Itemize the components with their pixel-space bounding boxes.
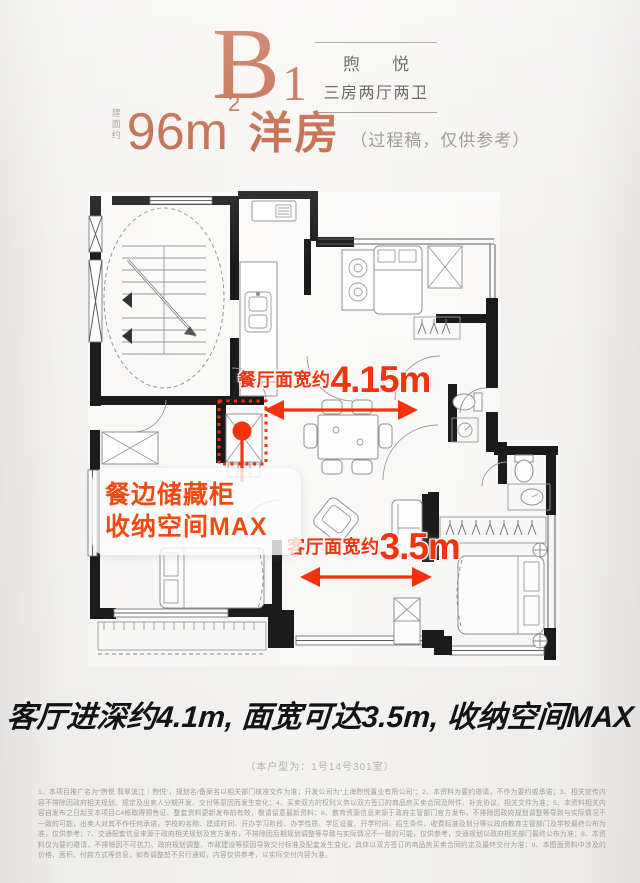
storage-callout-line1: 餐边储藏柜 <box>105 479 291 511</box>
headline: 客厅进深约4.1m, 面宽可达3.5m, 收纳空间MAX <box>0 692 640 736</box>
vent-hood-icon <box>252 201 296 221</box>
dining-width-value: 4.15m <box>331 364 431 395</box>
area-row: 建面约 96m2 洋房 （过程稿，仅供参考） <box>0 108 640 156</box>
area-prefix: 建面约 <box>110 108 123 148</box>
plan-code: B 1 <box>212 18 307 112</box>
draft-note: （过程稿，仅供参考） <box>350 126 530 151</box>
flyer-page: B 1 煦 悦 三房两厅两卫 建面约 96m2 洋房 （过程稿，仅供参考） <box>0 0 640 883</box>
unit-note: （本户型为：1号14号301室） <box>0 758 640 773</box>
area-value: 96m2 <box>127 109 240 156</box>
headline-text: 客厅进深约4.1m, 面宽可达3.5m, 收纳空间MAX <box>5 692 635 736</box>
dining-width-label: 餐厅面宽约4.15m <box>238 364 430 395</box>
area-number: 96m <box>127 103 228 161</box>
brand-box: 煦 悦 三房两厅两卫 <box>315 42 437 113</box>
tv-cabinet-icon <box>394 598 420 644</box>
dining-width-text: 餐厅面宽约 <box>238 366 331 392</box>
product-type: 洋房 <box>248 112 340 156</box>
living-width-label: 客厅面宽约3.5m <box>287 531 460 562</box>
plan-code-number: 1 <box>282 58 307 108</box>
layout-type: 三房两厅两卫 <box>315 79 437 103</box>
plan-code-letter: B <box>212 18 280 112</box>
brand-name: 煦 悦 <box>315 50 437 75</box>
living-width-value: 3.5m <box>380 531 460 562</box>
floor-plan <box>78 188 583 700</box>
storage-callout: 餐边储藏柜 收纳空间MAX <box>92 468 301 555</box>
area-superscript: 2 <box>228 91 240 116</box>
stove-icon <box>342 250 374 310</box>
storage-callout-line2: 收纳空间MAX <box>105 511 291 543</box>
disclaimer: 1、本项目推广名为“煦悦 翡翠滨江｜煦悦”，规划名/备案名以相关部门核准文件为准… <box>38 788 606 862</box>
